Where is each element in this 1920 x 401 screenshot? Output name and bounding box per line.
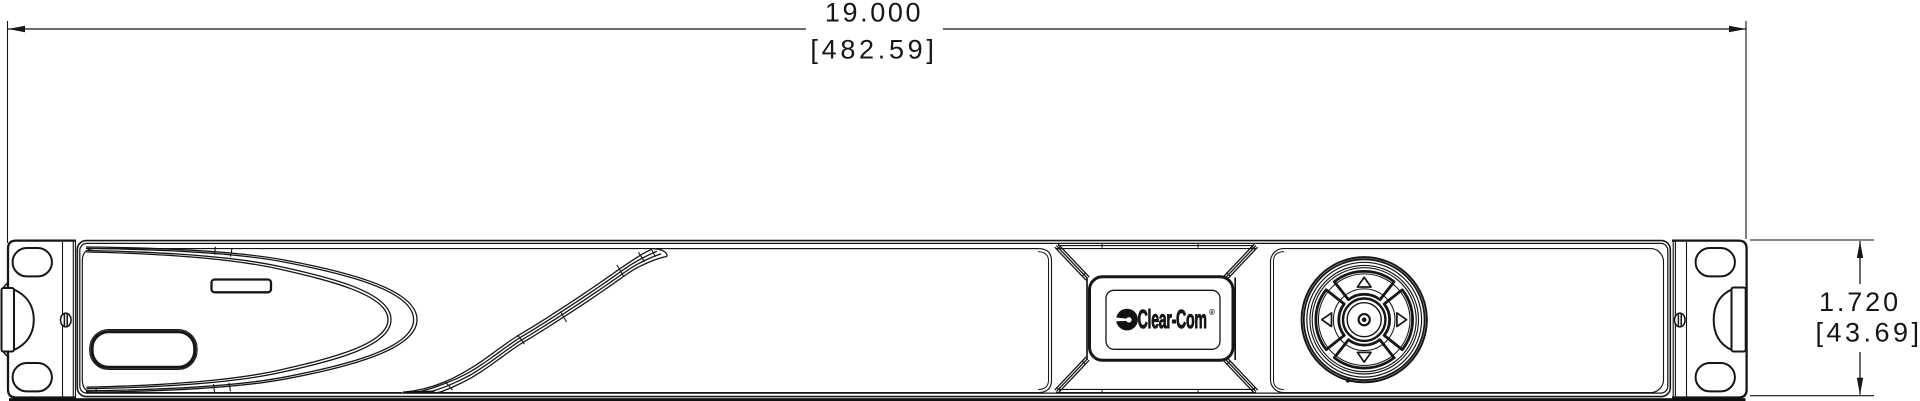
svg-text:®: ® <box>1209 308 1215 317</box>
svg-text:Clear-Com: Clear-Com <box>1138 306 1207 334</box>
svg-text:19.000: 19.000 <box>825 0 923 28</box>
svg-text:1.720: 1.720 <box>1819 287 1901 317</box>
svg-text:[482.59]: [482.59] <box>810 35 937 65</box>
svg-text:[43.69]: [43.69] <box>1815 317 1920 347</box>
